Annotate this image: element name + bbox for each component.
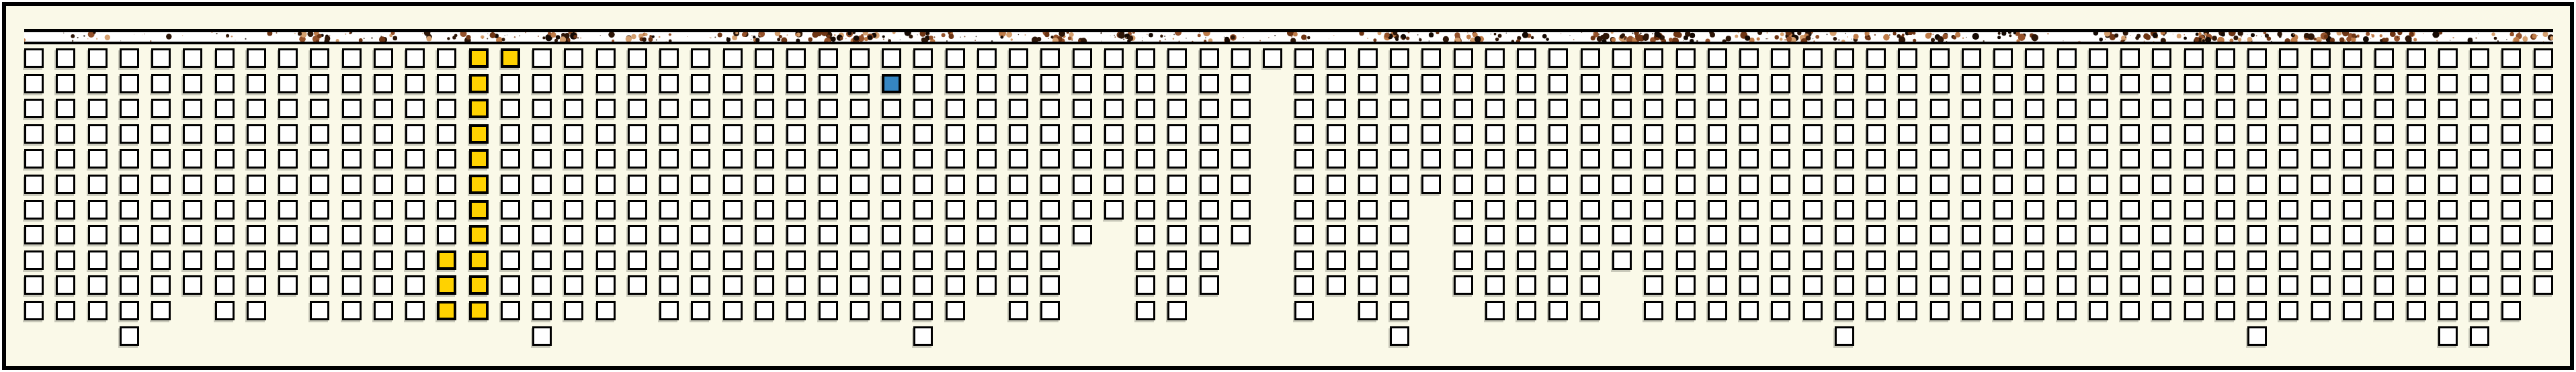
grid-square[interactable] xyxy=(1009,275,1028,295)
grid-square[interactable] xyxy=(2089,275,2108,295)
grid-square[interactable] xyxy=(1485,175,1505,194)
grid-square-highlighted[interactable] xyxy=(882,74,901,93)
grid-square[interactable] xyxy=(88,301,108,320)
grid-square[interactable] xyxy=(819,48,838,68)
grid-square[interactable] xyxy=(596,275,616,295)
grid-square[interactable] xyxy=(564,99,583,118)
grid-square[interactable] xyxy=(2407,48,2426,68)
grid-square[interactable] xyxy=(596,74,616,93)
grid-square[interactable] xyxy=(2247,326,2267,346)
grid-square[interactable] xyxy=(532,124,552,144)
grid-square[interactable] xyxy=(564,275,583,295)
grid-square[interactable] xyxy=(2343,175,2362,194)
grid-square[interactable] xyxy=(1771,48,1790,68)
grid-square[interactable] xyxy=(1835,301,1854,320)
grid-square[interactable] xyxy=(977,275,997,295)
grid-square[interactable] xyxy=(1167,74,1187,93)
grid-square[interactable] xyxy=(1200,149,1219,169)
grid-square[interactable] xyxy=(1581,175,1600,194)
grid-square[interactable] xyxy=(755,200,774,220)
grid-square[interactable] xyxy=(2247,48,2267,68)
grid-square[interactable] xyxy=(1421,74,1441,93)
grid-square[interactable] xyxy=(2438,301,2458,320)
grid-square[interactable] xyxy=(151,301,171,320)
grid-square[interactable] xyxy=(310,200,329,220)
grid-square[interactable] xyxy=(1167,124,1187,144)
grid-square[interactable] xyxy=(1294,99,1314,118)
grid-square[interactable] xyxy=(2216,48,2235,68)
grid-square[interactable] xyxy=(1294,48,1314,68)
grid-square[interactable] xyxy=(1993,149,2013,169)
grid-square[interactable] xyxy=(1581,124,1600,144)
grid-square[interactable] xyxy=(56,99,75,118)
grid-square[interactable] xyxy=(596,124,616,144)
grid-square[interactable] xyxy=(1485,48,1505,68)
grid-square[interactable] xyxy=(596,149,616,169)
grid-square[interactable] xyxy=(2311,200,2331,220)
grid-square[interactable] xyxy=(2501,48,2521,68)
grid-square[interactable] xyxy=(2216,200,2235,220)
grid-square[interactable] xyxy=(659,175,679,194)
grid-square[interactable] xyxy=(2407,175,2426,194)
grid-square[interactable] xyxy=(1327,149,1346,169)
grid-square[interactable] xyxy=(2089,250,2108,270)
grid-square[interactable] xyxy=(2120,200,2140,220)
grid-square[interactable] xyxy=(2534,175,2553,194)
grid-square[interactable] xyxy=(2501,99,2521,118)
grid-square[interactable] xyxy=(1676,225,1696,244)
grid-square[interactable] xyxy=(1167,149,1187,169)
grid-square[interactable] xyxy=(1898,99,1917,118)
grid-square[interactable] xyxy=(278,124,298,144)
grid-square[interactable] xyxy=(723,200,743,220)
grid-square[interactable] xyxy=(374,48,393,68)
grid-square[interactable] xyxy=(215,225,235,244)
grid-square[interactable] xyxy=(1708,48,1727,68)
grid-square[interactable] xyxy=(2374,74,2394,93)
grid-square[interactable] xyxy=(850,175,870,194)
grid-square[interactable] xyxy=(850,124,870,144)
grid-square[interactable] xyxy=(1548,124,1568,144)
grid-square[interactable] xyxy=(532,74,552,93)
grid-square[interactable] xyxy=(819,124,838,144)
grid-square[interactable] xyxy=(1962,200,1981,220)
grid-square[interactable] xyxy=(1803,175,1823,194)
grid-square[interactable] xyxy=(755,124,774,144)
grid-square[interactable] xyxy=(1040,250,1060,270)
grid-square[interactable] xyxy=(1835,326,1854,346)
grid-square[interactable] xyxy=(405,99,425,118)
grid-square[interactable] xyxy=(1358,200,1378,220)
grid-square[interactable] xyxy=(1708,250,1727,270)
grid-square[interactable] xyxy=(1644,99,1663,118)
grid-square[interactable] xyxy=(1009,124,1028,144)
grid-square[interactable] xyxy=(1739,175,1759,194)
grid-square[interactable] xyxy=(56,124,75,144)
grid-square[interactable] xyxy=(2089,301,2108,320)
grid-square[interactable] xyxy=(2025,225,2044,244)
grid-square[interactable] xyxy=(1167,301,1187,320)
grid-square[interactable] xyxy=(56,149,75,169)
grid-square[interactable] xyxy=(1612,149,1632,169)
grid-square[interactable] xyxy=(946,149,965,169)
grid-square[interactable] xyxy=(1676,175,1696,194)
grid-square[interactable] xyxy=(786,301,806,320)
grid-square[interactable] xyxy=(1962,48,1981,68)
grid-square[interactable] xyxy=(374,250,393,270)
grid-square[interactable] xyxy=(56,225,75,244)
grid-square[interactable] xyxy=(1390,149,1409,169)
grid-square[interactable] xyxy=(2152,200,2171,220)
grid-square[interactable] xyxy=(2438,48,2458,68)
grid-square[interactable] xyxy=(1358,48,1378,68)
grid-square[interactable] xyxy=(2343,124,2362,144)
grid-square[interactable] xyxy=(723,301,743,320)
grid-square[interactable] xyxy=(1898,74,1917,93)
grid-square[interactable] xyxy=(1866,250,1886,270)
grid-square[interactable] xyxy=(2343,149,2362,169)
grid-square[interactable] xyxy=(913,275,933,295)
grid-square[interactable] xyxy=(2311,149,2331,169)
grid-square[interactable] xyxy=(151,124,171,144)
grid-square[interactable] xyxy=(1548,74,1568,93)
grid-square[interactable] xyxy=(2279,175,2298,194)
grid-square[interactable] xyxy=(1327,200,1346,220)
grid-square[interactable] xyxy=(1835,175,1854,194)
grid-square[interactable] xyxy=(1708,301,1727,320)
grid-square[interactable] xyxy=(278,225,298,244)
grid-square[interactable] xyxy=(1390,326,1409,346)
grid-square[interactable] xyxy=(437,74,456,93)
grid-square[interactable] xyxy=(596,250,616,270)
grid-square[interactable] xyxy=(2311,74,2331,93)
grid-square[interactable] xyxy=(1136,74,1155,93)
grid-square[interactable] xyxy=(755,250,774,270)
grid-square[interactable] xyxy=(1803,149,1823,169)
grid-square[interactable] xyxy=(278,250,298,270)
grid-square[interactable] xyxy=(278,275,298,295)
grid-square[interactable] xyxy=(723,275,743,295)
grid-square[interactable] xyxy=(1644,175,1663,194)
grid-square[interactable] xyxy=(819,225,838,244)
grid-square[interactable] xyxy=(1327,250,1346,270)
grid-square[interactable] xyxy=(2057,250,2077,270)
grid-square[interactable] xyxy=(183,200,202,220)
grid-square[interactable] xyxy=(564,74,583,93)
grid-square[interactable] xyxy=(1104,200,1124,220)
grid-square[interactable] xyxy=(850,48,870,68)
grid-square[interactable] xyxy=(374,124,393,144)
grid-square[interactable] xyxy=(755,175,774,194)
grid-square[interactable] xyxy=(755,99,774,118)
grid-square[interactable] xyxy=(2343,250,2362,270)
grid-square[interactable] xyxy=(1835,99,1854,118)
grid-square[interactable] xyxy=(310,250,329,270)
grid-square[interactable] xyxy=(2407,74,2426,93)
grid-square[interactable] xyxy=(1231,124,1251,144)
grid-square[interactable] xyxy=(1581,149,1600,169)
grid-square[interactable] xyxy=(1009,74,1028,93)
grid-square[interactable] xyxy=(24,275,44,295)
grid-square[interactable] xyxy=(120,124,139,144)
grid-square[interactable] xyxy=(2089,99,2108,118)
grid-square[interactable] xyxy=(786,48,806,68)
grid-square[interactable] xyxy=(56,48,75,68)
grid-square[interactable] xyxy=(723,149,743,169)
grid-square[interactable] xyxy=(1358,250,1378,270)
grid-square[interactable] xyxy=(405,225,425,244)
grid-square[interactable] xyxy=(247,225,266,244)
grid-square[interactable] xyxy=(564,48,583,68)
grid-square[interactable] xyxy=(405,124,425,144)
grid-square[interactable] xyxy=(1676,301,1696,320)
grid-square[interactable] xyxy=(2374,48,2394,68)
grid-square[interactable] xyxy=(437,124,456,144)
grid-square[interactable] xyxy=(532,99,552,118)
grid-square[interactable] xyxy=(247,275,266,295)
grid-square[interactable] xyxy=(2470,326,2489,346)
grid-square[interactable] xyxy=(2279,99,2298,118)
grid-square[interactable] xyxy=(1676,149,1696,169)
grid-square[interactable] xyxy=(2025,200,2044,220)
grid-square[interactable] xyxy=(1358,275,1378,295)
grid-square[interactable] xyxy=(946,99,965,118)
grid-square[interactable] xyxy=(88,175,108,194)
grid-square[interactable] xyxy=(2025,124,2044,144)
grid-square[interactable] xyxy=(1073,99,1092,118)
grid-square[interactable] xyxy=(1708,99,1727,118)
grid-square[interactable] xyxy=(1581,99,1600,118)
grid-square[interactable] xyxy=(1612,74,1632,93)
grid-square[interactable] xyxy=(755,301,774,320)
grid-square[interactable] xyxy=(1200,124,1219,144)
grid-square[interactable] xyxy=(374,301,393,320)
grid-square[interactable] xyxy=(819,99,838,118)
grid-square[interactable] xyxy=(215,124,235,144)
grid-square[interactable] xyxy=(2343,225,2362,244)
grid-square[interactable] xyxy=(596,301,616,320)
grid-square[interactable] xyxy=(151,250,171,270)
grid-square[interactable] xyxy=(1581,200,1600,220)
grid-square[interactable] xyxy=(1136,175,1155,194)
grid-square[interactable] xyxy=(24,74,44,93)
grid-square[interactable] xyxy=(2374,124,2394,144)
grid-square[interactable] xyxy=(1421,149,1441,169)
grid-square[interactable] xyxy=(1835,74,1854,93)
grid-square[interactable] xyxy=(2216,149,2235,169)
grid-square[interactable] xyxy=(786,225,806,244)
grid-square[interactable] xyxy=(1040,200,1060,220)
grid-square[interactable] xyxy=(1708,124,1727,144)
grid-square[interactable] xyxy=(215,99,235,118)
grid-square[interactable] xyxy=(88,200,108,220)
grid-square[interactable] xyxy=(1390,275,1409,295)
grid-square[interactable] xyxy=(1454,275,1473,295)
grid-square[interactable] xyxy=(1644,124,1663,144)
grid-square[interactable] xyxy=(2374,250,2394,270)
grid-square[interactable] xyxy=(2470,301,2489,320)
grid-square[interactable] xyxy=(88,99,108,118)
grid-square[interactable] xyxy=(2374,275,2394,295)
grid-square[interactable] xyxy=(1993,124,2013,144)
grid-square[interactable] xyxy=(56,250,75,270)
grid-square[interactable] xyxy=(501,175,520,194)
grid-square[interactable] xyxy=(1930,99,1950,118)
grid-square[interactable] xyxy=(659,301,679,320)
grid-square[interactable] xyxy=(1993,74,2013,93)
grid-square[interactable] xyxy=(2120,124,2140,144)
grid-square[interactable] xyxy=(1073,225,1092,244)
grid-square[interactable] xyxy=(1771,200,1790,220)
grid-square[interactable] xyxy=(977,200,997,220)
grid-square[interactable] xyxy=(913,301,933,320)
grid-square[interactable] xyxy=(882,149,901,169)
grid-square[interactable] xyxy=(278,48,298,68)
grid-square[interactable] xyxy=(1866,200,1886,220)
grid-square[interactable] xyxy=(2247,175,2267,194)
grid-square[interactable] xyxy=(1771,275,1790,295)
grid-square[interactable] xyxy=(1993,225,2013,244)
grid-square[interactable] xyxy=(56,301,75,320)
grid-square[interactable] xyxy=(1200,250,1219,270)
grid-square[interactable] xyxy=(659,48,679,68)
grid-square[interactable] xyxy=(1612,175,1632,194)
grid-square[interactable] xyxy=(2470,225,2489,244)
grid-square[interactable] xyxy=(1390,99,1409,118)
grid-square[interactable] xyxy=(1073,124,1092,144)
grid-square[interactable] xyxy=(723,48,743,68)
grid-square[interactable] xyxy=(850,149,870,169)
grid-square[interactable] xyxy=(2089,149,2108,169)
grid-square[interactable] xyxy=(659,74,679,93)
grid-square[interactable] xyxy=(2311,175,2331,194)
grid-square[interactable] xyxy=(659,99,679,118)
grid-square[interactable] xyxy=(1294,200,1314,220)
grid-square[interactable] xyxy=(2501,301,2521,320)
grid-square[interactable] xyxy=(2343,48,2362,68)
grid-square[interactable] xyxy=(183,275,202,295)
grid-square[interactable] xyxy=(786,250,806,270)
grid-square[interactable] xyxy=(247,200,266,220)
grid-square[interactable] xyxy=(2152,275,2171,295)
grid-square[interactable] xyxy=(564,149,583,169)
grid-square[interactable] xyxy=(310,124,329,144)
grid-square[interactable] xyxy=(819,250,838,270)
grid-square[interactable] xyxy=(2216,175,2235,194)
grid-square[interactable] xyxy=(913,48,933,68)
grid-square[interactable] xyxy=(2057,200,2077,220)
grid-square[interactable] xyxy=(501,275,520,295)
grid-square[interactable] xyxy=(786,124,806,144)
grid-square[interactable] xyxy=(405,200,425,220)
grid-square[interactable] xyxy=(2216,99,2235,118)
grid-square[interactable] xyxy=(1644,225,1663,244)
grid-square[interactable] xyxy=(2438,175,2458,194)
grid-square[interactable] xyxy=(2279,149,2298,169)
grid-square[interactable] xyxy=(1930,225,1950,244)
grid-square[interactable] xyxy=(501,124,520,144)
grid-square[interactable] xyxy=(342,275,362,295)
grid-square[interactable] xyxy=(1421,48,1441,68)
grid-square[interactable] xyxy=(2025,275,2044,295)
grid-square[interactable] xyxy=(1040,175,1060,194)
grid-square[interactable] xyxy=(564,200,583,220)
grid-square[interactable] xyxy=(1485,124,1505,144)
grid-square[interactable] xyxy=(786,275,806,295)
grid-square[interactable] xyxy=(1676,250,1696,270)
grid-square[interactable] xyxy=(1073,200,1092,220)
grid-square[interactable] xyxy=(2279,301,2298,320)
grid-square[interactable] xyxy=(1517,48,1536,68)
grid-square[interactable] xyxy=(1517,250,1536,270)
grid-square[interactable] xyxy=(1803,200,1823,220)
grid-square[interactable] xyxy=(2311,250,2331,270)
grid-square[interactable] xyxy=(120,225,139,244)
grid-square[interactable] xyxy=(88,149,108,169)
grid-square[interactable] xyxy=(882,225,901,244)
grid-square[interactable] xyxy=(2089,200,2108,220)
grid-square[interactable] xyxy=(501,200,520,220)
grid-square[interactable] xyxy=(1167,275,1187,295)
grid-square[interactable] xyxy=(247,301,266,320)
grid-square[interactable] xyxy=(946,74,965,93)
grid-square[interactable] xyxy=(310,225,329,244)
grid-square[interactable] xyxy=(1327,175,1346,194)
grid-square[interactable] xyxy=(1644,275,1663,295)
grid-square[interactable] xyxy=(977,225,997,244)
grid-square[interactable] xyxy=(2120,275,2140,295)
grid-square[interactable] xyxy=(564,225,583,244)
grid-square[interactable] xyxy=(977,48,997,68)
grid-square[interactable] xyxy=(691,48,710,68)
grid-square[interactable] xyxy=(1930,275,1950,295)
grid-square[interactable] xyxy=(310,74,329,93)
grid-square[interactable] xyxy=(2120,99,2140,118)
grid-square[interactable] xyxy=(2534,250,2553,270)
grid-square[interactable] xyxy=(374,99,393,118)
grid-square[interactable] xyxy=(120,175,139,194)
grid-square[interactable] xyxy=(501,149,520,169)
grid-square[interactable] xyxy=(1739,225,1759,244)
grid-square[interactable] xyxy=(2057,275,2077,295)
grid-square[interactable] xyxy=(1835,225,1854,244)
grid-square[interactable] xyxy=(2279,250,2298,270)
grid-square[interactable] xyxy=(310,275,329,295)
grid-square[interactable] xyxy=(2534,124,2553,144)
grid-square[interactable] xyxy=(1009,48,1028,68)
grid-square[interactable] xyxy=(120,200,139,220)
grid-square[interactable] xyxy=(183,250,202,270)
grid-square[interactable] xyxy=(310,149,329,169)
grid-square[interactable] xyxy=(1200,200,1219,220)
grid-square[interactable] xyxy=(1803,99,1823,118)
grid-square[interactable] xyxy=(2247,74,2267,93)
grid-square[interactable] xyxy=(2120,149,2140,169)
grid-square[interactable] xyxy=(2184,124,2204,144)
grid-square[interactable] xyxy=(215,175,235,194)
grid-square[interactable] xyxy=(913,250,933,270)
grid-square[interactable] xyxy=(850,250,870,270)
grid-square[interactable] xyxy=(723,74,743,93)
grid-square[interactable] xyxy=(120,99,139,118)
grid-square[interactable] xyxy=(2152,225,2171,244)
grid-square[interactable] xyxy=(1009,149,1028,169)
grid-square[interactable] xyxy=(374,175,393,194)
grid-square[interactable] xyxy=(1581,275,1600,295)
grid-square[interactable] xyxy=(278,74,298,93)
grid-square[interactable] xyxy=(1739,301,1759,320)
grid-square[interactable] xyxy=(882,124,901,144)
